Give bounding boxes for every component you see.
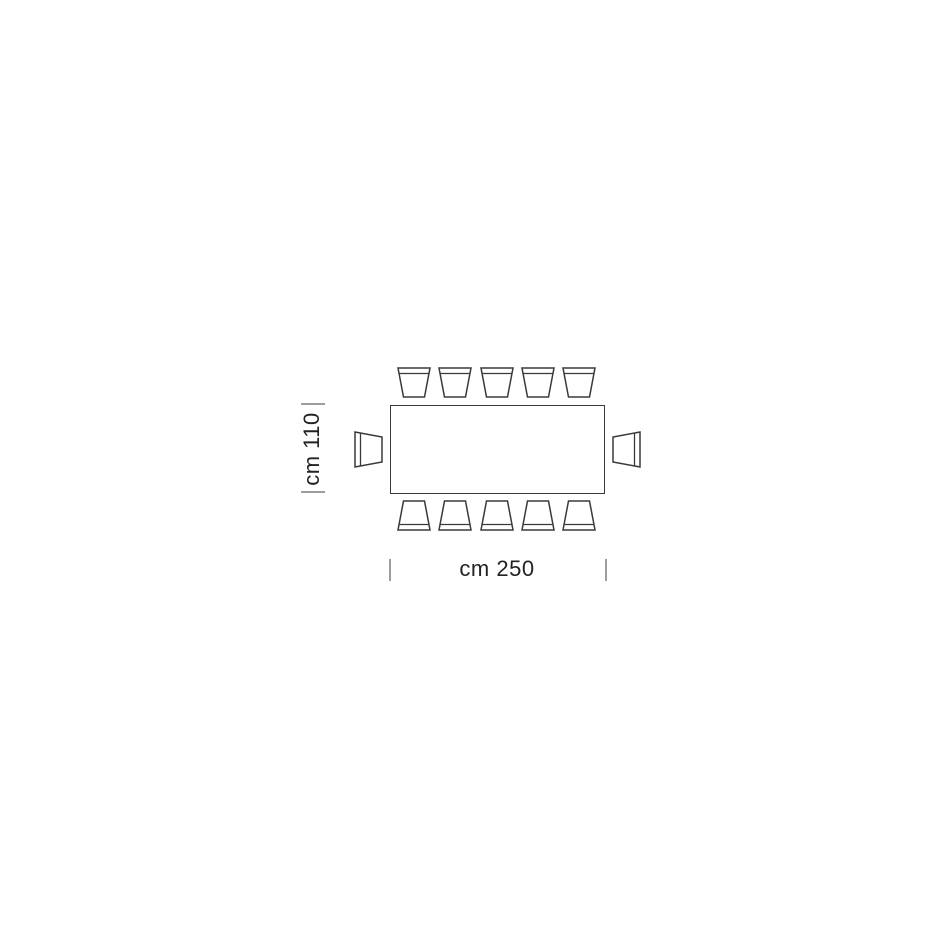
- table-outline: [390, 405, 605, 494]
- floor-plan: cm 110 cm 250: [0, 0, 950, 950]
- chair-bottom: [521, 500, 555, 531]
- chair-top: [480, 367, 514, 398]
- chair-top: [521, 367, 555, 398]
- chair-top: [562, 367, 596, 398]
- chair-top: [438, 367, 472, 398]
- depth-dimension-label: cm 110: [300, 389, 324, 509]
- chair-top: [397, 367, 431, 398]
- dimension-tick-right: [605, 559, 607, 581]
- width-dimension-label: cm 250: [437, 557, 557, 581]
- chair-left: [354, 431, 383, 468]
- chair-bottom: [480, 500, 514, 531]
- chair-bottom: [438, 500, 472, 531]
- chair-bottom: [397, 500, 431, 531]
- chair-right: [612, 431, 641, 468]
- chair-bottom: [562, 500, 596, 531]
- dimension-tick-left: [389, 559, 391, 581]
